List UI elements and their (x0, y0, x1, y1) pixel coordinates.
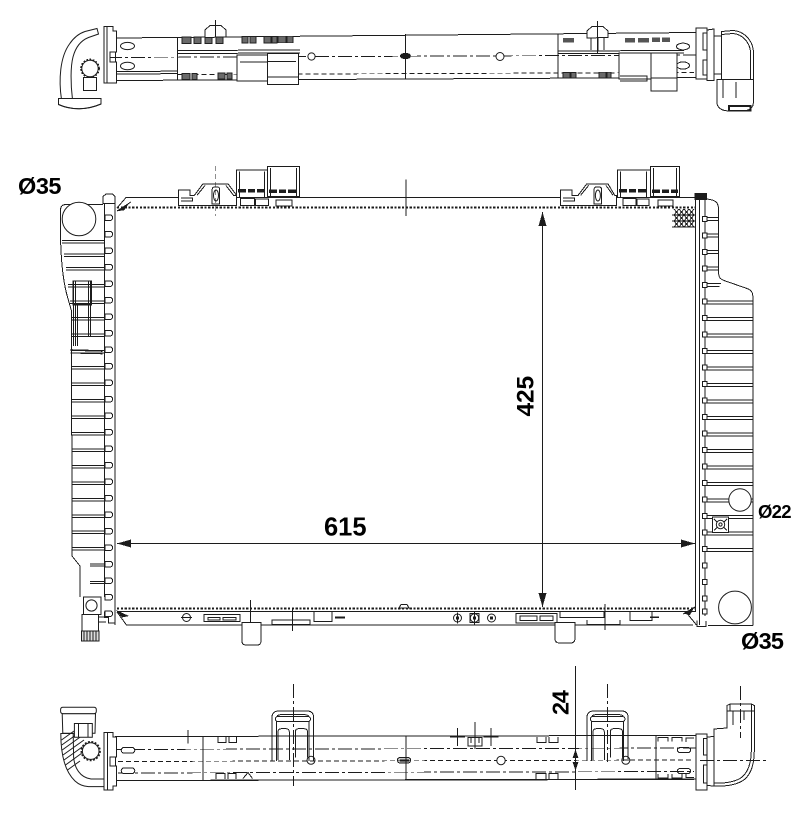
svg-text:Ø35: Ø35 (741, 628, 784, 654)
svg-text:Ø35: Ø35 (18, 173, 62, 199)
svg-text:24: 24 (548, 690, 574, 715)
svg-text:425: 425 (513, 376, 540, 417)
svg-text:615: 615 (324, 514, 367, 542)
svg-text:Ø22: Ø22 (758, 501, 792, 522)
